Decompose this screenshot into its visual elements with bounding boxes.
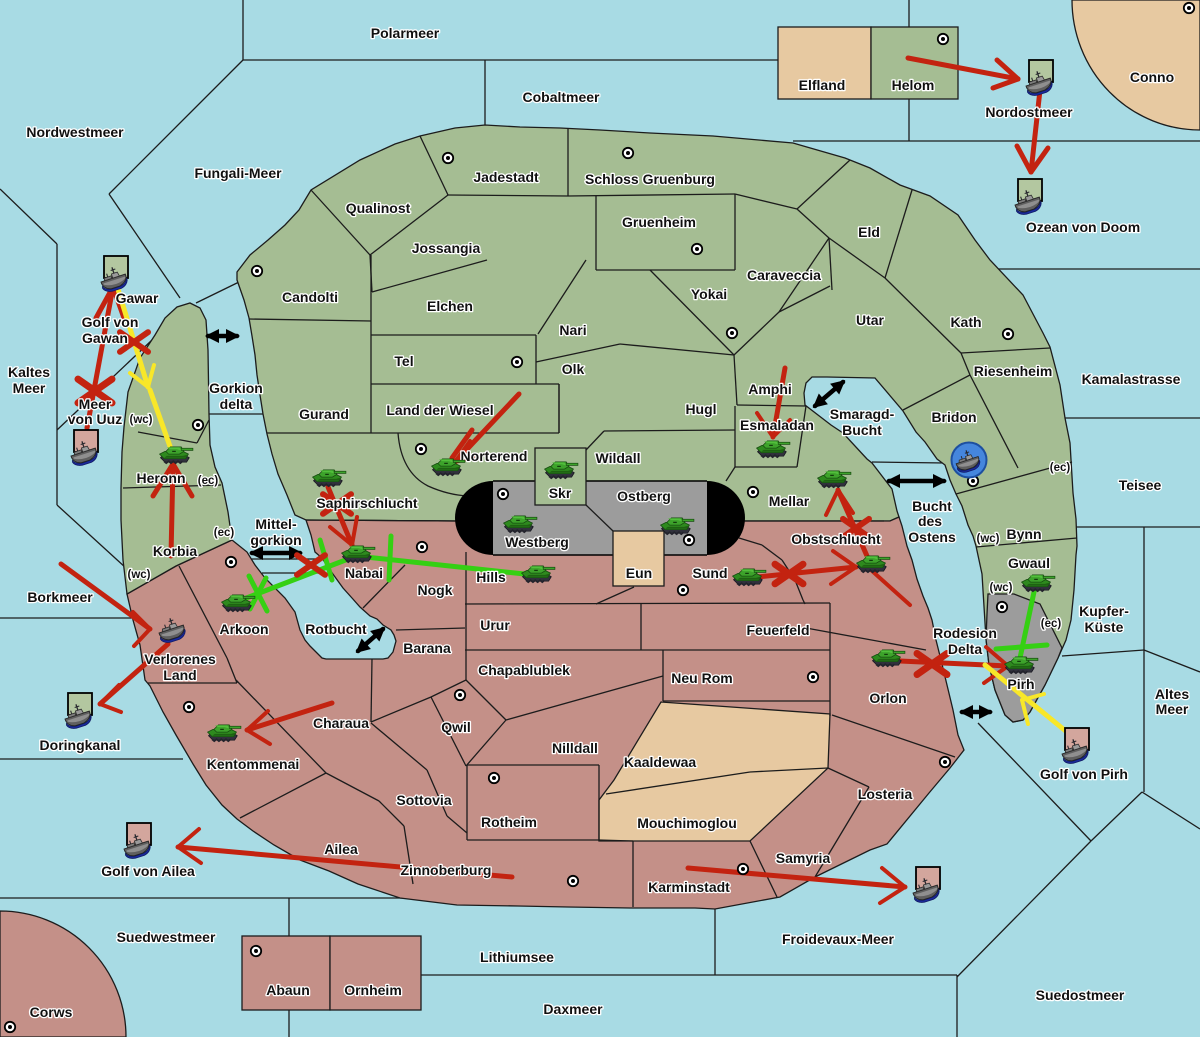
svg-text:Samyria: Samyria <box>776 850 831 866</box>
svg-text:Kamalastrasse: Kamalastrasse <box>1082 371 1181 387</box>
svg-text:von Uuz: von Uuz <box>68 411 122 427</box>
svg-text:Skr: Skr <box>549 485 572 501</box>
svg-text:Kath: Kath <box>950 314 981 330</box>
svg-text:Feuerfeld: Feuerfeld <box>746 622 809 638</box>
svg-text:Polarmeer: Polarmeer <box>371 25 440 41</box>
svg-text:Charaua: Charaua <box>313 715 369 731</box>
svg-text:Kentommenai: Kentommenai <box>207 756 300 772</box>
svg-text:Froidevaux-Meer: Froidevaux-Meer <box>782 931 895 947</box>
svg-text:(wc): (wc) <box>128 569 151 581</box>
svg-text:Losteria: Losteria <box>858 786 913 802</box>
svg-text:Conno: Conno <box>1130 69 1174 85</box>
svg-text:Ozean von Doom: Ozean von Doom <box>1026 219 1140 235</box>
svg-text:Golf von: Golf von <box>82 314 139 330</box>
svg-text:Golf von Pirh: Golf von Pirh <box>1040 766 1128 782</box>
svg-text:Arkoon: Arkoon <box>220 621 269 637</box>
svg-text:Candolti: Candolti <box>282 289 338 305</box>
svg-text:Qwil: Qwil <box>441 719 471 735</box>
svg-text:Gurand: Gurand <box>299 406 349 422</box>
svg-text:Wildall: Wildall <box>596 450 641 466</box>
svg-text:Golf von Ailea: Golf von Ailea <box>101 863 195 879</box>
svg-text:(ec): (ec) <box>1050 462 1071 474</box>
svg-text:Yokai: Yokai <box>691 286 727 302</box>
svg-text:(ec): (ec) <box>214 527 235 539</box>
svg-text:(wc): (wc) <box>977 533 1000 545</box>
svg-text:Saphirschlucht: Saphirschlucht <box>316 495 417 511</box>
svg-text:Suedostmeer: Suedostmeer <box>1036 987 1125 1003</box>
svg-text:Kaltes: Kaltes <box>8 364 50 380</box>
svg-text:Gawan: Gawan <box>82 330 128 346</box>
svg-text:Altes: Altes <box>1155 686 1189 702</box>
svg-text:des: des <box>918 513 942 529</box>
svg-text:Smaragd-: Smaragd- <box>830 406 895 422</box>
svg-text:Ostberg: Ostberg <box>617 488 671 504</box>
svg-text:Tel: Tel <box>394 353 413 369</box>
svg-text:Ailea: Ailea <box>324 841 358 857</box>
svg-text:Urur: Urur <box>480 617 510 633</box>
svg-text:Neu Rom: Neu Rom <box>671 670 732 686</box>
svg-text:Eld: Eld <box>858 224 880 240</box>
svg-text:Jossangia: Jossangia <box>412 240 481 256</box>
svg-text:Rotheim: Rotheim <box>481 814 537 830</box>
svg-text:gorkion: gorkion <box>250 532 301 548</box>
svg-text:Chapablublek: Chapablublek <box>478 662 570 678</box>
svg-text:Elfland: Elfland <box>799 77 846 93</box>
svg-text:Bynn: Bynn <box>1007 526 1042 542</box>
svg-text:Sund: Sund <box>693 565 728 581</box>
svg-text:Heronn: Heronn <box>137 470 186 486</box>
svg-text:Meer: Meer <box>1156 701 1189 717</box>
svg-text:Korbia: Korbia <box>153 543 198 559</box>
svg-text:Suedwestmeer: Suedwestmeer <box>117 929 216 945</box>
svg-text:Bridon: Bridon <box>931 409 976 425</box>
svg-text:Meer: Meer <box>79 396 112 412</box>
svg-text:Obstschlucht: Obstschlucht <box>791 531 881 547</box>
svg-text:Riesenheim: Riesenheim <box>974 363 1053 379</box>
svg-text:Meer: Meer <box>13 380 46 396</box>
svg-text:Delta: Delta <box>948 641 982 657</box>
svg-text:Mittel-: Mittel- <box>255 516 297 532</box>
svg-text:Küste: Küste <box>1085 619 1124 635</box>
svg-text:(ec): (ec) <box>1041 618 1062 630</box>
svg-text:Gawar: Gawar <box>116 290 159 306</box>
svg-text:Olk: Olk <box>562 361 585 377</box>
svg-text:Hills: Hills <box>476 569 506 585</box>
svg-text:Elchen: Elchen <box>427 298 473 314</box>
svg-text:Nordostmeer: Nordostmeer <box>985 104 1073 120</box>
svg-text:Mellar: Mellar <box>769 493 810 509</box>
svg-text:Daxmeer: Daxmeer <box>543 1001 603 1017</box>
svg-text:Barana: Barana <box>403 640 451 656</box>
svg-text:Land: Land <box>163 667 196 683</box>
svg-text:Lithiumsee: Lithiumsee <box>480 949 554 965</box>
svg-text:Nilldall: Nilldall <box>552 740 598 756</box>
svg-text:Westberg: Westberg <box>505 534 569 550</box>
svg-text:Gorkion: Gorkion <box>209 380 263 396</box>
svg-text:Rodesion: Rodesion <box>933 625 997 641</box>
svg-text:Doringkanal: Doringkanal <box>40 737 121 753</box>
svg-text:Jadestadt: Jadestadt <box>473 169 539 185</box>
svg-text:Ornheim: Ornheim <box>344 982 402 998</box>
svg-text:delta: delta <box>220 396 253 412</box>
svg-text:Rotbucht: Rotbucht <box>305 621 367 637</box>
svg-text:Utar: Utar <box>856 312 885 328</box>
svg-text:Gruenheim: Gruenheim <box>622 214 696 230</box>
svg-text:Kaaldewaa: Kaaldewaa <box>624 754 697 770</box>
svg-text:Corws: Corws <box>30 1004 73 1020</box>
svg-text:(ec): (ec) <box>198 475 219 487</box>
svg-text:Karminstadt: Karminstadt <box>648 879 730 895</box>
svg-text:Norterend: Norterend <box>461 448 528 464</box>
svg-text:Teisee: Teisee <box>1119 477 1162 493</box>
svg-text:Mouchimoglou: Mouchimoglou <box>637 815 737 831</box>
svg-text:Nordwestmeer: Nordwestmeer <box>26 124 124 140</box>
svg-text:Bucht: Bucht <box>912 498 952 514</box>
svg-text:Verlorenes: Verlorenes <box>144 651 216 667</box>
svg-text:Caraveccia: Caraveccia <box>747 267 821 283</box>
svg-text:Schloss Gruenburg: Schloss Gruenburg <box>585 171 715 187</box>
svg-text:(wc): (wc) <box>990 582 1013 594</box>
svg-text:Esmaladan: Esmaladan <box>740 417 814 433</box>
svg-text:Gwaul: Gwaul <box>1008 555 1050 571</box>
svg-text:Sottovia: Sottovia <box>396 792 451 808</box>
svg-text:Ostens: Ostens <box>908 529 956 545</box>
svg-text:Hugl: Hugl <box>685 401 716 417</box>
svg-text:Abaun: Abaun <box>266 982 310 998</box>
svg-text:Qualinost: Qualinost <box>346 200 411 216</box>
svg-text:Pirh: Pirh <box>1007 676 1034 692</box>
svg-text:Nogk: Nogk <box>418 582 453 598</box>
svg-text:Nari: Nari <box>559 322 586 338</box>
svg-text:Nabai: Nabai <box>345 565 383 581</box>
svg-text:Orlon: Orlon <box>869 690 906 706</box>
svg-text:Fungali-Meer: Fungali-Meer <box>194 165 282 181</box>
svg-text:Borkmeer: Borkmeer <box>27 589 93 605</box>
svg-text:Cobaltmeer: Cobaltmeer <box>522 89 600 105</box>
svg-text:(wc): (wc) <box>130 414 153 426</box>
svg-text:Land der Wiesel: Land der Wiesel <box>386 402 493 418</box>
svg-text:Amphi: Amphi <box>748 381 792 397</box>
svg-text:Zinnoberburg: Zinnoberburg <box>401 862 492 878</box>
svg-text:Bucht: Bucht <box>842 422 882 438</box>
svg-text:Helom: Helom <box>892 77 935 93</box>
svg-text:Kupfer-: Kupfer- <box>1079 603 1129 619</box>
svg-text:Eun: Eun <box>626 565 652 581</box>
